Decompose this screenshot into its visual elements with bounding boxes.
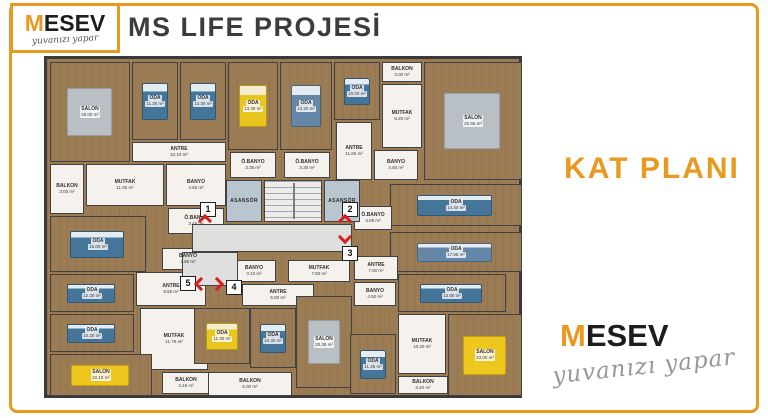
- corridor-1: [192, 224, 352, 252]
- furniture-sofa-yellow: [71, 365, 129, 385]
- room-balkon-6: BALKON3.00 m²: [382, 62, 422, 82]
- room-antre-36: ANTRE7.50 m²: [354, 256, 398, 280]
- furniture-rug: [308, 320, 340, 363]
- furniture-rug: [444, 93, 500, 148]
- furniture-sofa-yellow: [463, 336, 505, 375]
- room-label: BANYO3.10 m²: [233, 261, 275, 281]
- room-banyo-37: BANYO4.50 m²: [354, 282, 396, 306]
- room-label: MUTFAK10.20 m²: [399, 315, 445, 373]
- room-label: BANYO4.50 m²: [375, 151, 417, 179]
- furniture-bed-teal: [344, 78, 371, 106]
- room-label: MUTFAK8.20 m²: [383, 85, 421, 147]
- mesev-wordmark: MESEV: [25, 12, 106, 35]
- room-mutfak-30: MUTFAK7.50 m²: [288, 260, 350, 282]
- mesev-logo-bottom: MESEV yuvanızı yapar: [552, 320, 752, 378]
- brand-tagline: yuvanızı yapar: [32, 34, 99, 46]
- room-salon-0: SALON25.00 m²: [50, 62, 130, 162]
- stair-rail: [293, 183, 295, 219]
- room-banyo-13: BANYO4.65 m²: [166, 164, 226, 206]
- page-title: MS LIFE PROJESİ: [128, 12, 382, 43]
- room-label: ANTRE7.50 m²: [355, 257, 397, 279]
- furniture-bed-blue: [291, 85, 321, 127]
- furniture-bed-teal: [67, 324, 115, 343]
- room-oda-3: ODA13.30 m²: [228, 62, 278, 150]
- room-antre-9: ANTRE10.10 m²: [132, 142, 226, 162]
- room-oda-32: ODA11.30 m²: [194, 308, 250, 364]
- brand-letters-esev: ESEV: [44, 10, 105, 36]
- room-label: Ö.BANYO3.30 m²: [285, 153, 329, 177]
- furniture-bed-teal: [70, 231, 125, 258]
- furniture-bed-teal: [190, 83, 217, 120]
- furniture-bed-teal: [417, 195, 492, 215]
- room-oda-33: ODA10.30 m²: [250, 308, 296, 368]
- furniture-bed-blue: [417, 243, 492, 262]
- room-oda-22: ODA17.55 m²: [390, 232, 522, 272]
- furniture-bed-yellow: [206, 323, 238, 350]
- room-label: BALKON3.00 m²: [51, 165, 83, 213]
- room-oda-17: ODA16.00 m²: [50, 216, 146, 272]
- room-oda-39: ODA11.35 m²: [350, 334, 396, 394]
- room-mutfak-7: MUTFAK8.20 m²: [382, 84, 422, 148]
- room-label: BANYO4.65 m²: [167, 165, 225, 205]
- room-oda-23: ODA12.30 m²: [50, 274, 134, 312]
- room-label: Ö.BANYO3.85 m²: [355, 207, 391, 229]
- room-salon-8: SALON20.65 m²: [424, 62, 522, 180]
- room-antre-10: ANTRE11.65 m²: [336, 122, 372, 180]
- unit-marker-4: 4: [226, 280, 242, 295]
- brand-letter-m: M: [560, 318, 586, 353]
- room-salon-27: SALON20.10 m²: [50, 354, 152, 396]
- room-label: ANTRE10.10 m²: [133, 143, 225, 161]
- unit-marker-3: 3: [342, 246, 358, 261]
- furniture-bed-teal: [420, 284, 481, 303]
- room-balkon-42: BALKON3.40 m²: [398, 376, 448, 394]
- room-balkon-35: BALKON6.00 m²: [208, 372, 292, 396]
- room-oda-1: ODA11.30 m²: [132, 62, 178, 140]
- room-banyo-16: BANYO4.50 m²: [374, 150, 418, 180]
- room-balkon-11: BALKON3.00 m²: [50, 164, 84, 214]
- furniture-bed-teal: [142, 83, 169, 120]
- furniture-rug: [67, 88, 113, 135]
- room-oda-38: ODA13.80 m²: [398, 274, 506, 312]
- furniture-bed-teal: [360, 350, 387, 379]
- brand-letters-esev: ESEV: [586, 318, 669, 353]
- room-balkon-28: BALKON3.15 m²: [162, 372, 210, 394]
- room-label: MUTFAK11.00 m²: [87, 165, 163, 205]
- room-banyo-14: Ö.BANYO3.35 m²: [230, 152, 276, 178]
- furniture-bed-teal: [67, 284, 115, 303]
- elevator-1: ASANSÖR: [226, 180, 262, 222]
- room-label: BALKON3.15 m²: [163, 373, 209, 393]
- furniture-bed-teal: [260, 324, 287, 353]
- room-label: BALKON6.00 m²: [209, 373, 291, 395]
- room-mutfak-40: MUTFAK10.20 m²: [398, 314, 446, 374]
- staircase: [264, 180, 322, 222]
- room-oda-20: ODA14.40 m²: [390, 184, 522, 226]
- kat-plani-label: KAT PLANI: [552, 152, 752, 186]
- mesev-logo-top: MESEV yuvanızı yapar: [10, 3, 120, 53]
- furniture-bed-yellow: [239, 85, 268, 127]
- room-banyo-15: Ö.BANYO3.30 m²: [284, 152, 330, 178]
- room-label: BANYO4.50 m²: [355, 283, 395, 305]
- room-mutfak-12: MUTFAK11.00 m²: [86, 164, 164, 206]
- room-salon-41: SALON23.00 m²: [448, 314, 522, 396]
- room-oda-24: ODA10.20 m²: [50, 314, 134, 352]
- brand-letter-m: M: [25, 10, 44, 36]
- room-label: Ö.BANYO3.35 m²: [231, 153, 275, 177]
- room-label: BALKON3.40 m²: [399, 377, 447, 393]
- elevator-label: ASANSÖR: [230, 198, 258, 204]
- room-label: ANTRE11.65 m²: [337, 123, 371, 179]
- room-label: MUTFAK7.50 m²: [289, 261, 349, 281]
- room-oda-4: ODA13.20 m²: [280, 62, 332, 150]
- room-salon-34: SALON20.35 m²: [296, 296, 352, 388]
- room-label: BALKON3.00 m²: [383, 63, 421, 81]
- room-oda-5: ODA10.00 m²: [334, 62, 380, 120]
- room-banyo-29: BANYO3.10 m²: [232, 260, 276, 282]
- room-oda-2: ODA13.30 m²: [180, 62, 226, 140]
- floor-plan: SALON25.00 m²ODA11.30 m²ODA13.30 m²ODA13…: [36, 56, 530, 400]
